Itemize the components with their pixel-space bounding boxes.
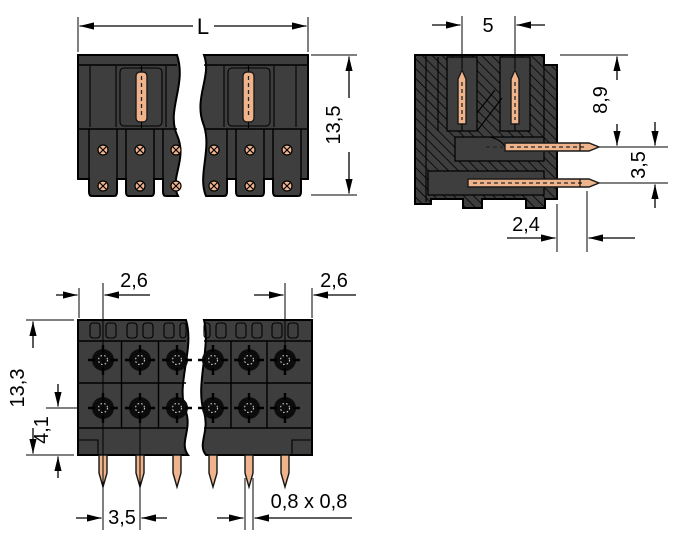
dim-label-row-inset-4-1: 4,1 [31, 416, 53, 444]
dim-label-depth-13-3: 13,3 [7, 369, 29, 408]
dim-label-length-L: L [197, 14, 209, 39]
dim-label-pin-section-0-8: 0,8 x 0,8 [271, 491, 348, 513]
dim-label-height-13-5: 13,5 [323, 106, 345, 145]
side-horizontal-pin-lower [468, 179, 668, 187]
dim-label-pin-spacing-5: 5 [482, 15, 493, 37]
dim-label-pin-pitch-3-5: 3,5 [108, 507, 136, 529]
front-view-housing [78, 55, 308, 196]
side-horizontal-pin-upper [486, 143, 668, 151]
front-pin-left [136, 65, 147, 128]
drawing-svg: L 13,5 [0, 0, 697, 543]
dim-label-pin-height-8-9: 8,9 [590, 86, 612, 114]
dim-label-margin-right-2-6: 2,6 [320, 270, 348, 292]
top-housing-left-segment [78, 320, 188, 455]
top-housing-right-segment [201, 320, 312, 455]
top-solder-pins [99, 455, 289, 487]
dim-label-row-offset-3-5: 3,5 [628, 151, 650, 179]
dim-label-margin-left-2-6: 2,6 [120, 270, 148, 292]
technical-drawing: L 13,5 [0, 0, 697, 543]
dim-label-edge-offset-2-4: 2,4 [512, 214, 540, 236]
side-view: 5 8,9 3,5 2,4 [415, 15, 668, 252]
top-view: 2,6 2,6 13,3 4,1 3,5 0,8 x 0,8 [7, 270, 356, 530]
front-view: L 13,5 [78, 14, 357, 196]
front-pin-right [243, 65, 254, 128]
top-view-housing [78, 320, 312, 487]
